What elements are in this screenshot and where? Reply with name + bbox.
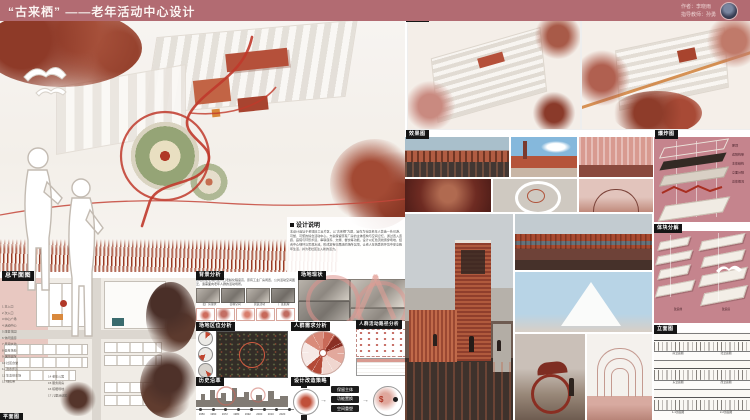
- photo-caption: 厂区肌理: [278, 302, 289, 306]
- window-texture: [405, 151, 509, 161]
- section-label-elevations: 立面图: [654, 325, 677, 334]
- photo-caption: 街巷空间: [230, 302, 241, 306]
- strategy-step-box: 空间重塑: [331, 405, 359, 412]
- mass-block: [657, 236, 690, 251]
- avatar: [720, 2, 738, 20]
- background-intro: 基地所在老城片区人口老龄化程度高，原有工业厂房闲置，公共活动空间匮乏，亟需面向老…: [196, 279, 296, 287]
- advisor-line: 指导教师：孙勇: [681, 11, 716, 19]
- massing-caption: 改造后: [722, 307, 730, 311]
- design-notes-title: 设计说明: [296, 220, 320, 229]
- tree-blob: [612, 91, 702, 130]
- section-label-paths: 人群活动路径分析: [356, 320, 402, 329]
- elevations-panel: 南立面图 北立面图 东立面图 西立面图 1-1剖面图 2-2剖面图: [654, 332, 750, 420]
- location-map-circle: [198, 347, 213, 362]
- figure-silhouette: [569, 378, 574, 396]
- red-sketch: [216, 308, 235, 321]
- tree-blob: [526, 91, 581, 130]
- timeline-dot: [212, 408, 215, 411]
- site-status-panel: 场地现状: [298, 271, 405, 321]
- render-mountain-view: [515, 272, 652, 332]
- elevation-caption: 南立面图: [672, 351, 683, 355]
- timeline-dot: [199, 408, 202, 411]
- mass-block: [699, 233, 746, 251]
- render-tower-building: [405, 214, 513, 420]
- strategy-panel: 设计改造策略 → 保留主体 功能置换 空间重塑 → $: [291, 377, 405, 420]
- massing-panel: 改造前 改造后: [654, 231, 750, 323]
- guide-line: [670, 235, 671, 297]
- elevation-drawing: [654, 360, 750, 381]
- tree-cluster: [146, 282, 196, 352]
- cloud: [541, 141, 571, 153]
- rickshaw-canopy: [536, 360, 567, 375]
- arrow-right-icon: →: [362, 397, 369, 404]
- legend-item: 15 服务用房: [48, 380, 94, 385]
- bridge-arc: [593, 189, 639, 212]
- strategy-bubble-before: [293, 389, 319, 415]
- shop-block-icon: [301, 415, 307, 420]
- strategy-bubble-after: $: [373, 386, 403, 416]
- timeline-year: 1992: [245, 413, 251, 416]
- historic-photo: [271, 288, 295, 303]
- section-label-strategy: 设计改造策略: [291, 377, 330, 386]
- historic-photo: [221, 288, 245, 303]
- history-panel: 历史沿革 1950 1960 1972 1980 1992 2000: [196, 377, 288, 420]
- timeline-year: 1950: [199, 413, 205, 416]
- red-sketch: [236, 308, 255, 321]
- dollar-icon: $: [379, 395, 383, 404]
- facade-slats: [515, 234, 652, 249]
- render-gate-building: [515, 214, 652, 270]
- red-sketch: [196, 308, 215, 321]
- render-factory-chimney: [511, 137, 577, 177]
- legend-item: 8 健身场地: [2, 348, 48, 353]
- timeline-dot: [237, 408, 240, 411]
- location-analysis-panel: 场地区位分析: [196, 322, 288, 375]
- elevation-caption: 北立面图: [720, 351, 731, 355]
- seagull-silhouette: [22, 59, 82, 105]
- section-label-demand: 人群需求分析: [291, 322, 330, 331]
- birdseye-render-2: [581, 20, 750, 130]
- render-arcade-interior: [587, 334, 652, 420]
- figure-silhouette: [433, 334, 437, 346]
- section-label-location: 场地区位分析: [196, 322, 235, 331]
- design-notes-panel: 设计说明 本设计选址于老城旧工业片区，以“古来栖”为题，旨在为社区老年人营造一处…: [287, 217, 405, 273]
- section-label-plan-footer: 平面图: [0, 413, 23, 420]
- layer-label: 主体结构: [732, 161, 750, 166]
- timeline-dot: [224, 408, 227, 411]
- mass-block: [655, 280, 695, 298]
- timeline-year: 1972: [222, 413, 228, 416]
- tree-blob: [407, 81, 460, 130]
- elevation-drawing: [654, 333, 750, 352]
- section-label-history: 历史沿革: [196, 377, 224, 386]
- legend-item: 10 社区食堂: [2, 360, 48, 365]
- massing-caption: 改造前: [674, 307, 682, 311]
- satellite-map: [216, 331, 288, 378]
- photo-caption: 居民活动: [254, 302, 265, 306]
- timeline-dot: [250, 408, 253, 411]
- section-label-site-plan: 总平面图: [2, 271, 34, 281]
- colonnade-texture: [579, 137, 653, 165]
- section-label-exploded: 爆炸图: [655, 130, 678, 139]
- elevation-caption: 1-1剖面图: [672, 410, 684, 414]
- arrow-right-icon: →: [320, 397, 327, 404]
- exploded-layer-labels: 屋顶 遮阳构架 主体结构 立面分隔 总体概况: [732, 143, 750, 222]
- design-notes-body: 本设计选址于老城旧工业片区，以“古来栖”为题，旨在为社区老年人营造一处可游、可憩…: [290, 230, 402, 252]
- elevation-caption: 东立面图: [672, 380, 683, 384]
- bullet-square-icon: [290, 223, 294, 227]
- tree-cluster: [140, 352, 196, 418]
- timeline-axis: [196, 409, 294, 411]
- people-icon: [393, 397, 398, 402]
- figure-silhouette: [469, 336, 474, 352]
- path-scatter-diagram: [356, 329, 406, 357]
- elevation-drawing: [654, 389, 750, 411]
- legend-item: 16 晾晒场地: [48, 387, 94, 392]
- timeline-year: 2010: [268, 413, 274, 416]
- path-analysis-panel: 人群活动路径分析: [356, 320, 405, 375]
- exploded-layer-base: [658, 196, 730, 221]
- render-pink-hall: [579, 137, 653, 177]
- city-skyline-silhouette: [196, 385, 288, 407]
- timeline-dot: [275, 408, 278, 411]
- layer-label: 总体概况: [732, 179, 750, 184]
- mass-block: [655, 250, 693, 265]
- layer-label: 遮阳构架: [732, 152, 750, 157]
- poster-title: “古来栖” ——老年活动中心设计: [8, 3, 195, 20]
- strategy-steps: 保留主体 功能置换 空间重塑: [331, 386, 359, 412]
- location-map-circle: [198, 363, 213, 378]
- tower-window-band: [461, 250, 485, 274]
- section-label-renders: 效果图: [406, 130, 429, 139]
- strategy-step-box: 功能置换: [331, 396, 359, 403]
- timeline-year: 2020: [279, 413, 285, 416]
- timeline-dot: [263, 408, 266, 411]
- legend-item: 17 儿童活动区: [48, 393, 94, 398]
- author-line: 作者：李晓雨: [681, 3, 716, 11]
- layer-label: 屋顶: [732, 143, 750, 148]
- legend-item: 14 老年公寓: [48, 374, 94, 379]
- water-reflection: [405, 162, 509, 177]
- pink-ribbon-overlay: [306, 275, 360, 321]
- historic-photo: [246, 288, 270, 303]
- background-analysis-panel: 背景分析 基地所在老城片区人口老龄化程度高，原有工业厂房闲置，公共活动空间匮乏，…: [196, 271, 296, 321]
- exploded-layer-red-path: [660, 183, 726, 197]
- render-bridge-plaza: [579, 179, 653, 212]
- credits: 作者：李晓雨 指导教师：孙勇: [681, 3, 716, 19]
- exploded-axon-panel: 屋顶 遮阳构架 主体结构 立面分隔 总体概况: [654, 137, 750, 222]
- demand-analysis-panel: 人群需求分析: [291, 322, 353, 375]
- mass-block: [700, 285, 748, 306]
- render-canal-scene: [405, 137, 509, 177]
- render-rickshaw-street: [515, 334, 585, 420]
- historic-photo: [196, 288, 220, 303]
- mass-block: [657, 264, 691, 280]
- legend-item: 11 滨水步道: [2, 367, 48, 372]
- arch-outline: [611, 368, 629, 397]
- ground-reflection: [405, 362, 513, 420]
- figure-silhouette: [497, 340, 501, 351]
- seagull-silhouette: [714, 261, 744, 277]
- section-label-background: 背景分析: [196, 271, 224, 280]
- chimney: [523, 141, 527, 159]
- red-sketch: [276, 308, 295, 321]
- photo-caption: 旧厂房现状: [203, 302, 217, 306]
- legend-item: 12 生态停车场: [2, 373, 48, 378]
- birdseye-render-1: [407, 20, 581, 130]
- rickshaw-wheel: [531, 374, 571, 414]
- plaza-ring-inner: [527, 189, 545, 203]
- section-label-massing: 体块分解: [654, 224, 682, 233]
- design-poster: “古来栖” ——老年活动中心设计 作者：李晓雨 指导教师：孙勇: [0, 0, 750, 420]
- elevation-caption: 西立面图: [720, 380, 731, 384]
- plan-legend-col2: 14 老年公寓 15 服务用房 16 晾晒场地 17 儿童活动区: [48, 374, 94, 406]
- section-label-site-status: 场地现状: [298, 271, 326, 280]
- timeline-year: 1980: [233, 413, 239, 416]
- render-circular-plaza: [493, 179, 577, 212]
- layer-label: 立面分隔: [732, 170, 750, 175]
- strategy-step-box: 保留主体: [331, 386, 359, 393]
- elevation-caption: 2-2剖面图: [720, 410, 732, 414]
- pedestrian-silhouettes: [6, 140, 116, 345]
- rose-center-dot: [319, 349, 327, 357]
- white-peak: [561, 282, 621, 326]
- timeline-year: 1960: [210, 413, 216, 416]
- red-sketch: [256, 308, 275, 321]
- render-interior-red: [405, 179, 491, 212]
- timeline-year: 2000: [256, 413, 262, 416]
- header-bar: “古来栖” ——老年活动中心设计 作者：李晓雨 指导教师：孙勇: [0, 0, 750, 21]
- location-map-circle: [198, 331, 213, 346]
- legend-item: 13 绿化带: [2, 379, 48, 384]
- site-boundary-ring: [239, 342, 265, 368]
- path-data-table: [356, 358, 406, 376]
- legend-item: 9 棋牌庭院: [2, 354, 48, 359]
